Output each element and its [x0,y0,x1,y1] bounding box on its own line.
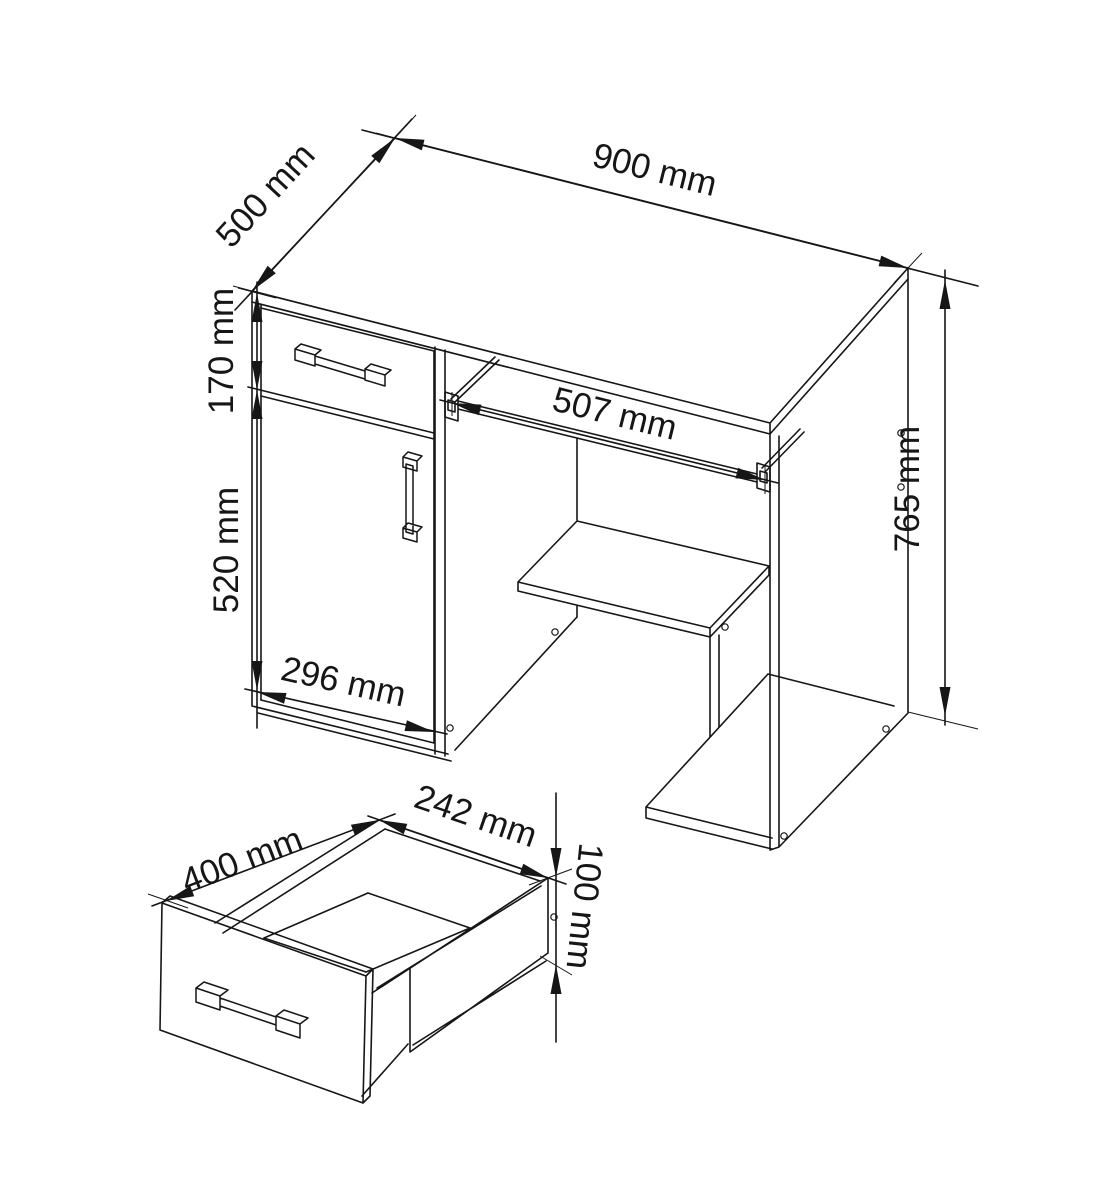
detail-drawer-handle [196,982,308,1038]
screw-hole [781,833,787,839]
dim-label-500: 500 mm [208,135,322,255]
dim-label-900: 900 mm [589,136,721,204]
technical-drawing: 900 mm 500 mm 170 mm 520 mm 296 mm [0,0,1103,1200]
dimension-width-900: 900 mm [362,115,978,286]
door-handle [403,452,422,542]
dimension-height-765: 765 mm [888,268,978,729]
dim-label-507: 507 mm [549,380,681,448]
keyboard-shelf [518,521,769,637]
desk-dimensions: 900 mm 500 mm 170 mm 520 mm 296 mm [202,115,978,734]
detail-drawer-front-panel [160,896,373,1103]
right-side-panel [770,279,908,850]
drawing-page: 900 mm 500 mm 170 mm 520 mm 296 mm [0,0,1103,1200]
floor-edge [455,617,577,750]
extension-tick [382,115,922,283]
shelf-support-panel [710,635,719,737]
screw-hole [722,624,728,630]
dimension-depth-500: 500 mm [208,119,414,310]
screw-hole [883,726,889,732]
screw-hole [552,629,558,635]
drawer-detail-view: 400 mm 242 mm 100 mm [148,777,610,1103]
drawer-front [248,308,434,439]
dim-label-296: 296 mm [278,649,410,714]
dimension-door-height-520: 520 mm [207,390,263,690]
drawer-handle [295,344,391,386]
screw-hole [447,725,453,731]
dimension-drawer-depth-400: 400 mm [148,814,395,908]
dim-label-765: 765 mm [888,426,927,552]
dim-label-520: 520 mm [207,487,246,613]
dim-label-170: 170 mm [202,288,241,414]
dimension-drawer-width-242: 242 mm [368,777,572,885]
desk-view [248,138,908,850]
screw-holes [447,430,904,839]
dimension-tray-width-507: 507 mm [440,380,778,494]
dim-label-400: 400 mm [176,819,308,901]
dim-label-100: 100 mm [558,841,610,971]
